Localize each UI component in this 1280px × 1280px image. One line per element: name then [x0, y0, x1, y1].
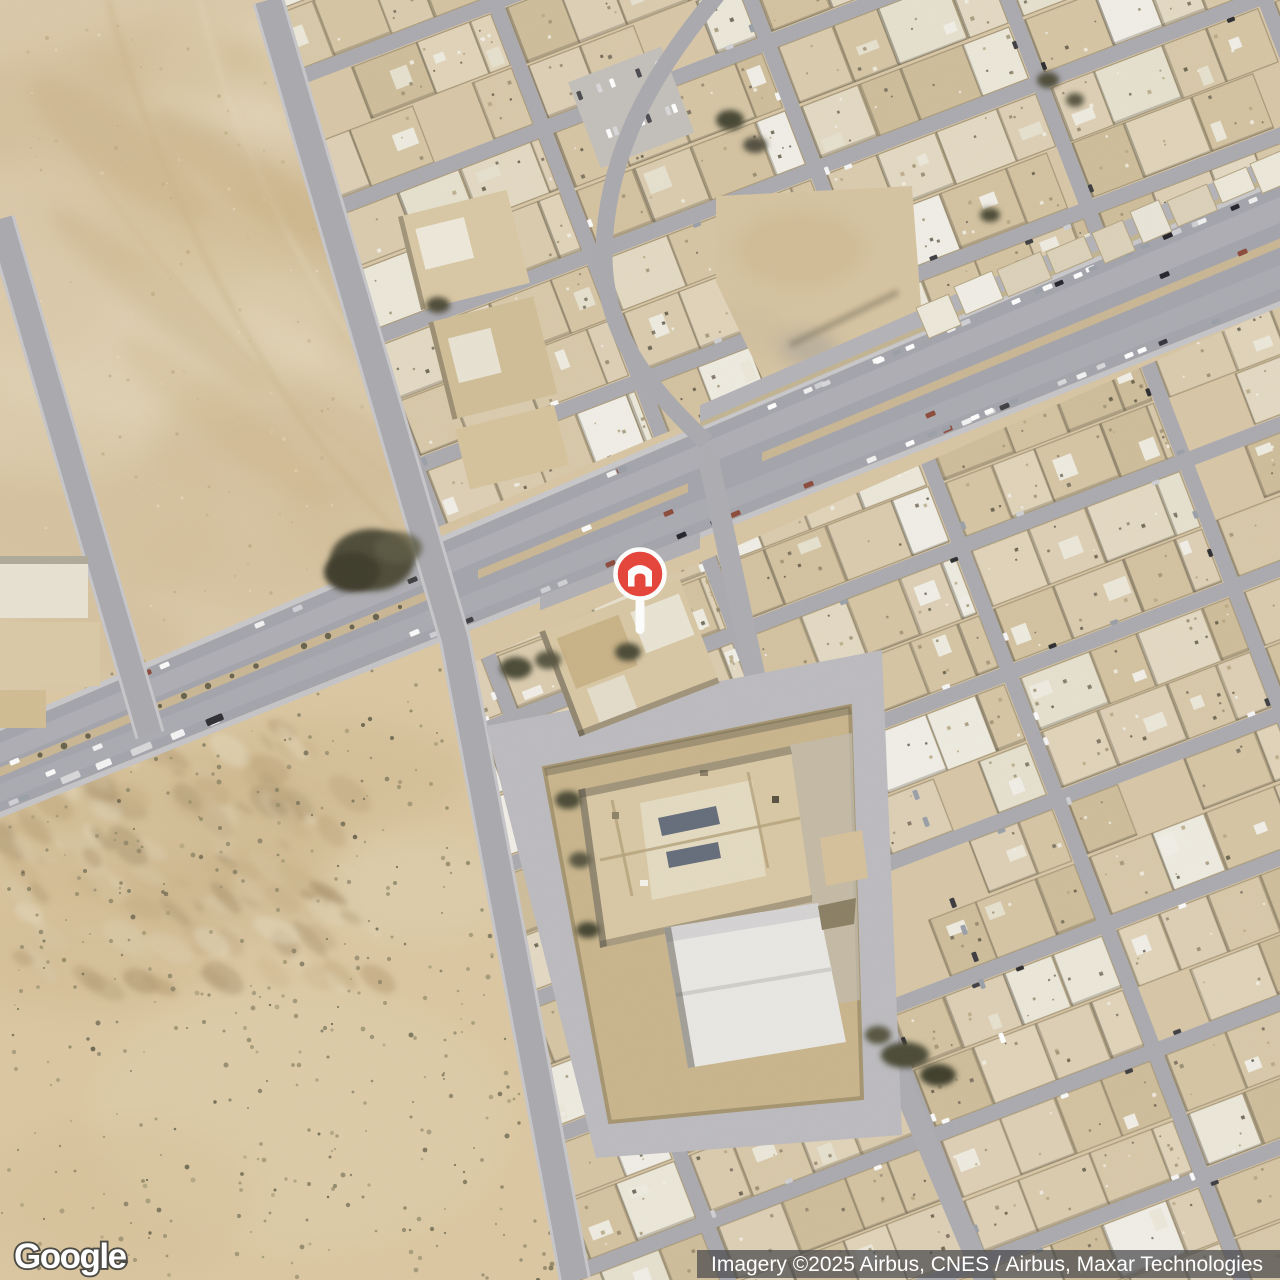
svg-text:Google: Google — [14, 1237, 127, 1276]
svg-text:Imagery ©2025 Airbus, CNES / A: Imagery ©2025 Airbus, CNES / Airbus, Max… — [711, 1253, 1263, 1276]
